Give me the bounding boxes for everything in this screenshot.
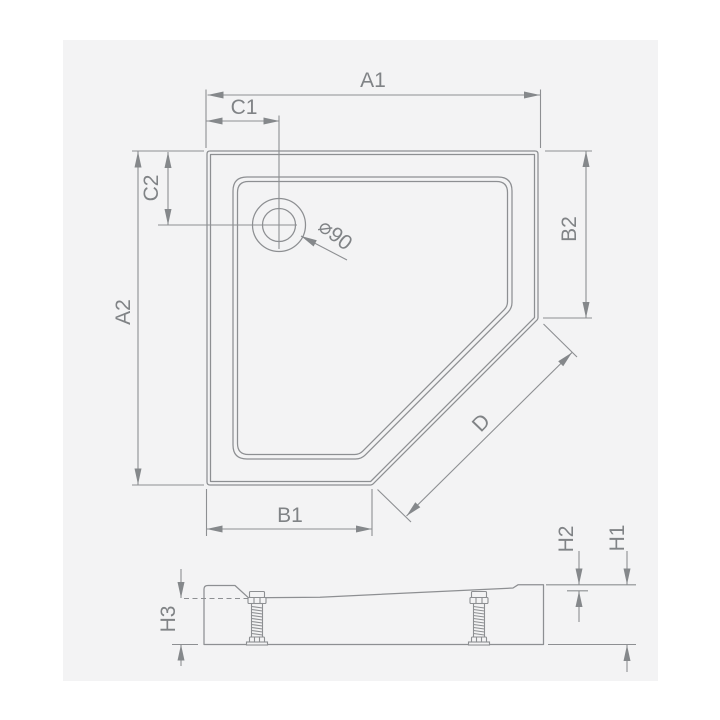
dimension-c2: C2 [140, 152, 172, 225]
side-view: H3 H2 H1 [157, 525, 636, 672]
drain-diameter-label: ⌀90 [314, 215, 357, 255]
dim-label-h2: H2 [555, 526, 578, 553]
arrowhead-left [208, 92, 224, 99]
adjustable-leg-right [469, 592, 490, 646]
leg-flange-nut [248, 598, 266, 604]
leg-top-nut [472, 592, 487, 598]
dim-label-c1: C1 [231, 96, 258, 119]
dimension-d: D [378, 324, 578, 522]
leg-top-nut [250, 592, 265, 598]
basin-inner-contour [238, 182, 508, 455]
arrowhead-bottom [135, 469, 142, 485]
drain-leader: ⌀90 [301, 215, 356, 260]
arrowhead-bottom [576, 591, 583, 607]
extension-line [378, 490, 412, 523]
dim-label-a1: A1 [360, 69, 386, 92]
dim-label-a2: A2 [112, 299, 135, 325]
leg-foot-plate [469, 642, 490, 645]
dim-label-h3: H3 [157, 606, 180, 633]
arrowhead-top [624, 569, 631, 585]
arrowhead-top [576, 569, 583, 585]
extension-line [544, 324, 578, 357]
dimension-line [407, 353, 573, 517]
technical-drawing-page: { "colors": { "page_bg": "#ffffff", "pan… [0, 0, 720, 720]
drain-circle [158, 116, 306, 252]
arrowhead-top [178, 582, 185, 598]
adjustable-leg-left [247, 592, 268, 646]
dim-label-h1: H1 [606, 525, 629, 552]
dim-label-b2: B2 [558, 216, 581, 242]
arrowhead-right [524, 92, 540, 99]
leg-threaded-rod [474, 604, 485, 638]
leg-flange-nut [470, 598, 488, 604]
leader-arrowhead [301, 236, 317, 247]
arrowhead-left [207, 526, 223, 533]
leg-foot-plate [247, 642, 268, 645]
dimension-b2: B2 [543, 151, 592, 318]
arrowhead-right [356, 526, 372, 533]
leg-threaded-rod [252, 604, 263, 638]
arrowhead-top [135, 152, 142, 168]
dimension-b1: B1 [207, 489, 373, 536]
dim-label-c2: C2 [140, 175, 163, 202]
arrowhead-top [583, 151, 590, 167]
dimension-h3: H3 [157, 569, 198, 666]
arrowhead-bottom [178, 645, 185, 661]
arrowhead-bottom [165, 209, 172, 225]
arrowhead-bottom [624, 645, 631, 661]
dim-label-b1: B1 [277, 504, 303, 527]
arrowhead-bottom [583, 302, 590, 318]
arrowhead-left [207, 118, 223, 125]
dimension-c1: C1 [207, 96, 280, 125]
arrowhead-right [264, 118, 280, 125]
shower-tray-technical-drawing: ⌀90 A1 C1 C2 [0, 0, 720, 720]
top-view: ⌀90 A1 C1 C2 [112, 69, 592, 536]
arrowhead-top [165, 152, 172, 168]
